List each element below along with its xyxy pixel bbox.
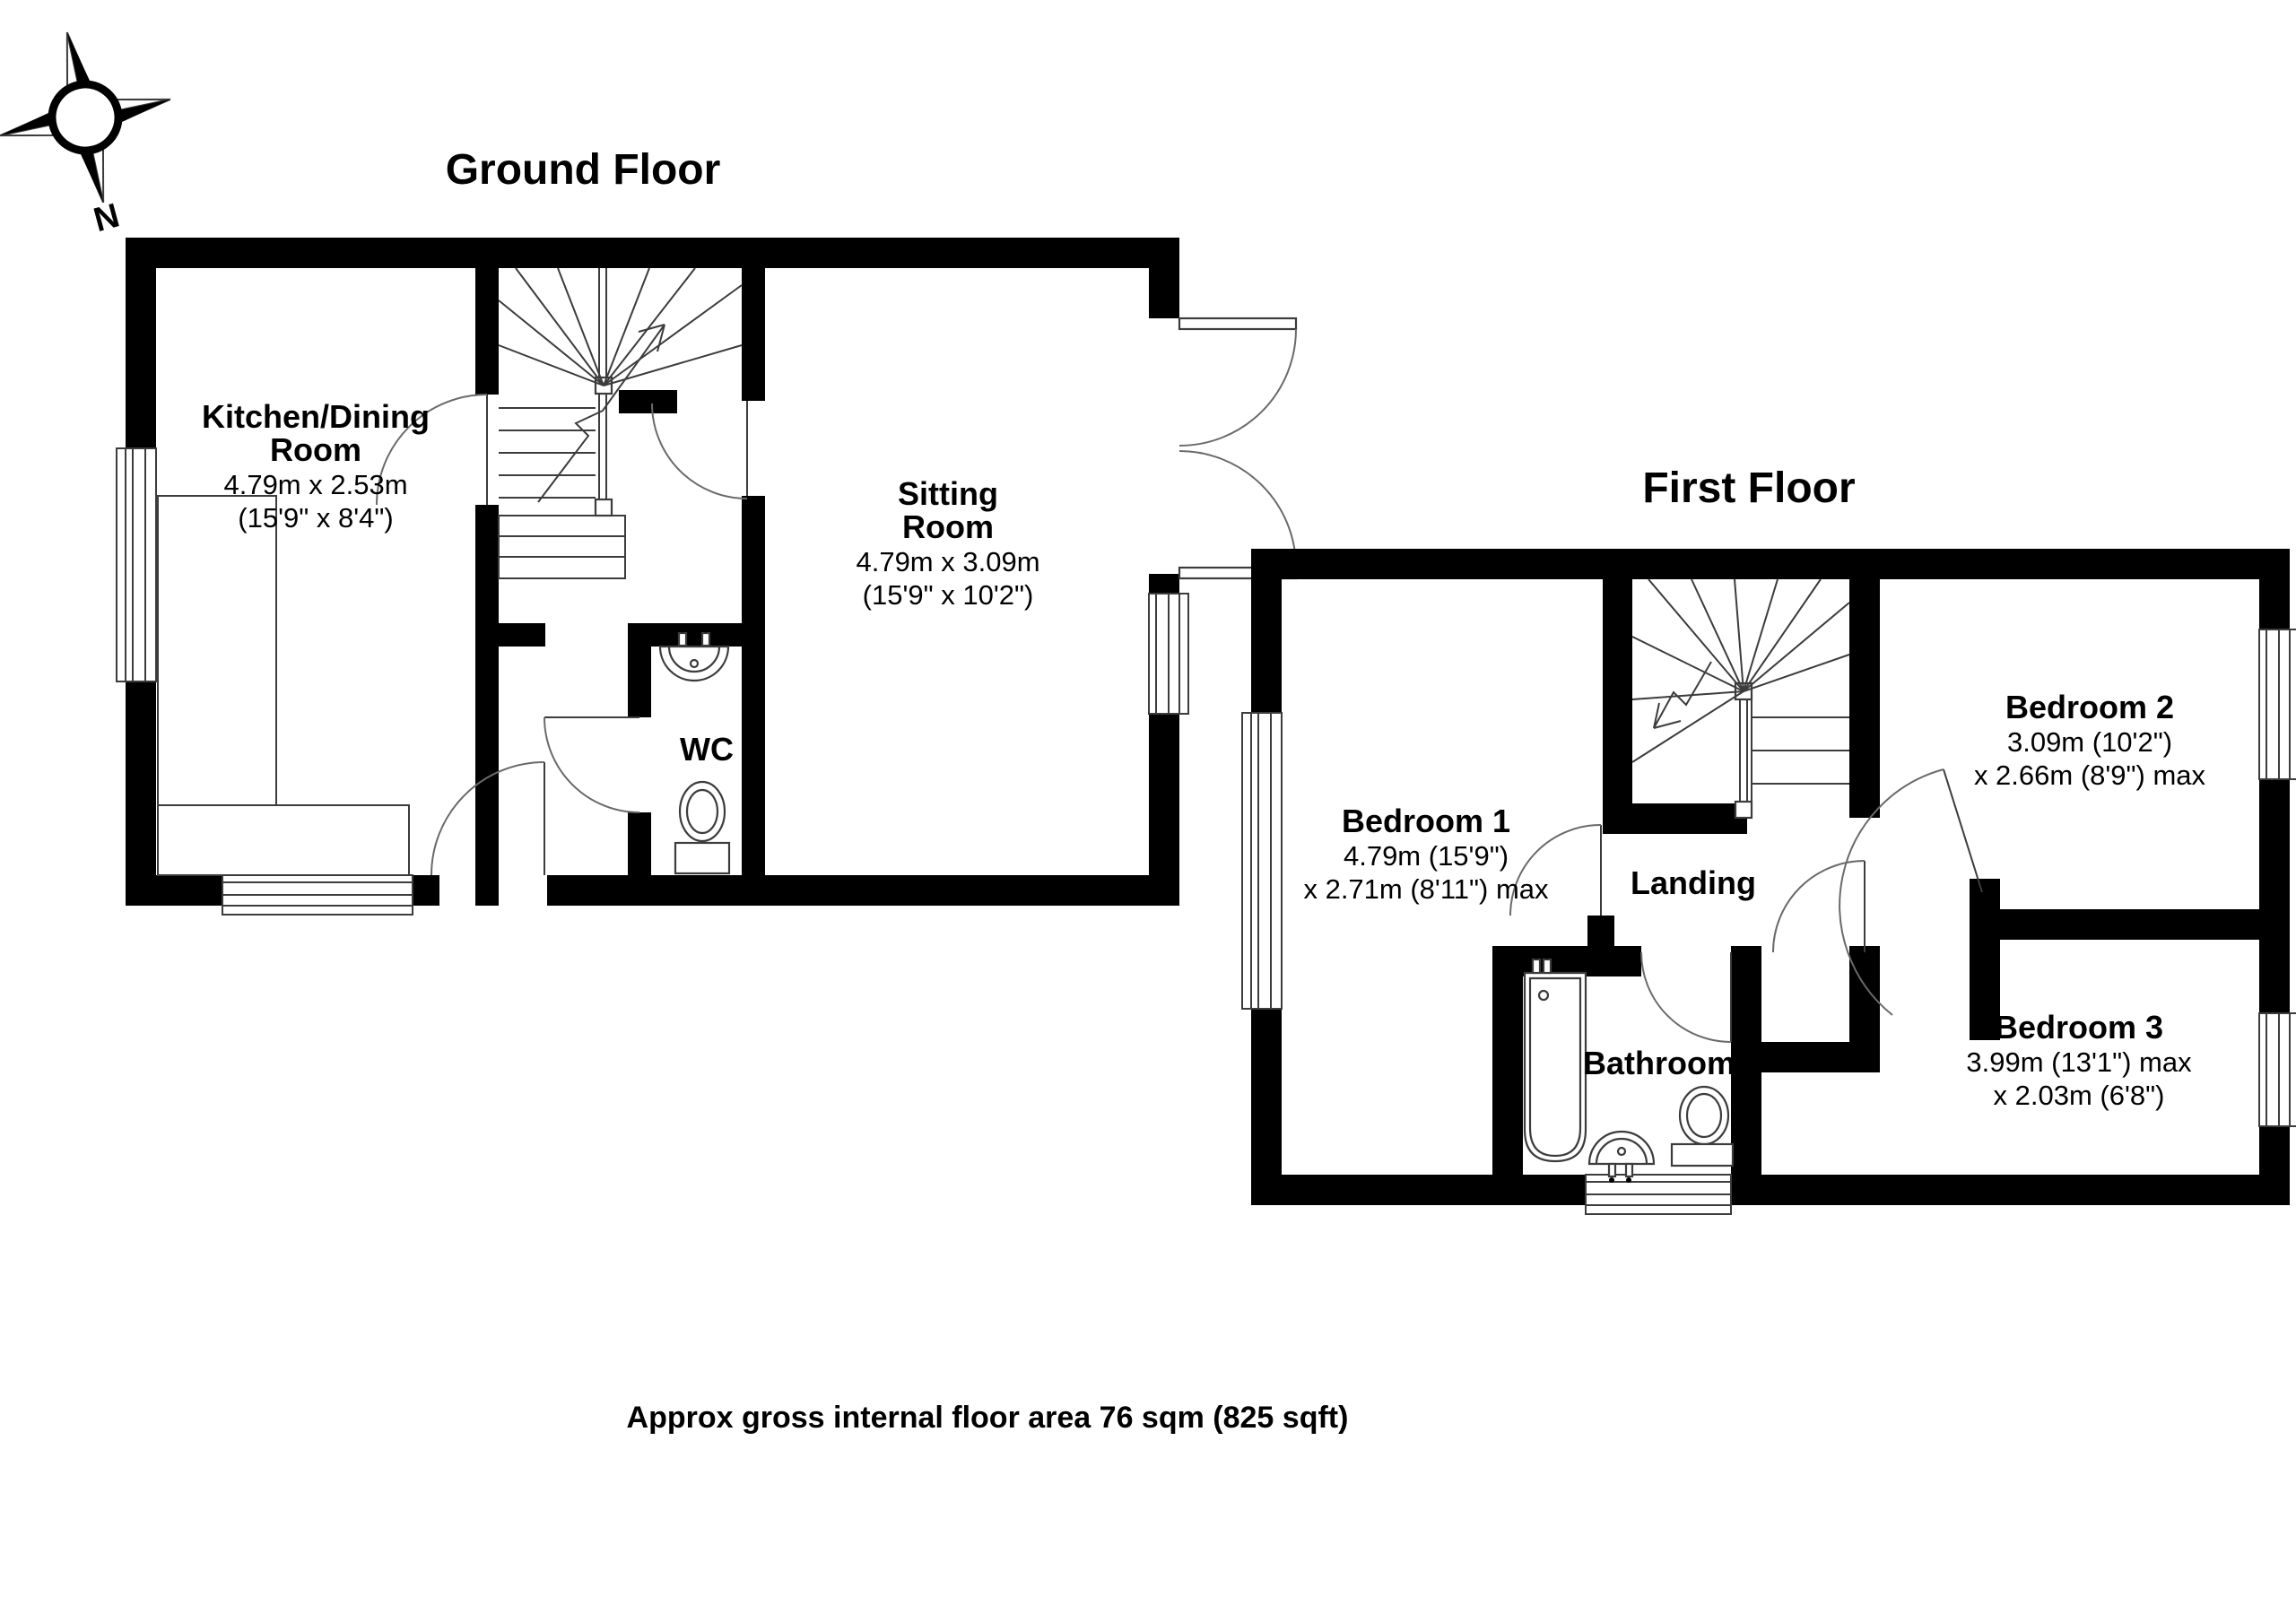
compass-rose: N xyxy=(0,14,188,239)
bedroom3-room-label: Bedroom 3 xyxy=(1995,1009,2163,1046)
kitchen-counter-icon xyxy=(158,496,409,875)
bathroom-toilet-icon xyxy=(1672,1087,1733,1166)
bedroom3-dims1: 3.99m (13'1") max xyxy=(1966,1046,2192,1078)
sitting-room-side-window-icon xyxy=(1149,594,1188,714)
bedroom2-dims1: 3.09m (10'2") xyxy=(2007,726,2172,758)
bedroom2-room-label: Bedroom 2 xyxy=(2005,689,2174,725)
bathroom-door-icon xyxy=(1641,952,1731,1042)
bathroom-window-icon xyxy=(1586,1175,1731,1214)
french-doors-icon xyxy=(1179,318,1296,578)
bedroom2-dims2: x 2.66m (8'9") max xyxy=(1974,759,2206,791)
bedroom3-window-icon xyxy=(2259,1013,2296,1126)
bedroom1-window-icon xyxy=(1242,713,1282,1009)
bedroom1-dims1: 4.79m (15'9") xyxy=(1344,840,1509,872)
floorplan-page: N Ground Floor xyxy=(0,0,2296,1623)
kitchen-side-window-icon xyxy=(117,448,156,681)
landing-room-label: Landing xyxy=(1631,864,1756,901)
sitting-dims-imperial: (15'9" x 10'2") xyxy=(863,579,1034,611)
first-stairs-icon xyxy=(1632,579,1849,818)
ground-floor-title: Ground Floor xyxy=(446,146,721,194)
bedroom2-window-icon xyxy=(2259,629,2296,779)
bedroom1-dims2: x 2.71m (8'11") max xyxy=(1303,873,1549,905)
sitting-dims-metric: 4.79m x 3.09m xyxy=(856,546,1039,577)
bathtub-icon xyxy=(1525,953,1586,1162)
wc-door-icon xyxy=(544,717,639,812)
compass-north-label: N xyxy=(90,197,123,240)
ground-stairs-icon xyxy=(499,268,742,578)
wc-room-label: WC xyxy=(680,731,734,768)
kitchen-room-label2: Room xyxy=(270,431,361,468)
kitchen-bottom-window-icon xyxy=(222,875,413,915)
bedroom1-room-label: Bedroom 1 xyxy=(1342,803,1510,839)
bathroom-room-label: Bathroom xyxy=(1583,1045,1735,1081)
wc-toilet-icon xyxy=(675,782,729,873)
floor-area-note: Approx gross internal floor area 76 sqm … xyxy=(627,1401,1349,1435)
sitting-room-door-icon xyxy=(652,401,747,499)
bedroom3-dims2: x 2.03m (6'8") xyxy=(1994,1080,2165,1111)
kitchen-dims-imperial: (15'9" x 8'4") xyxy=(238,502,393,534)
sitting-room-label2: Room xyxy=(902,508,994,545)
bedroom3-door-icon xyxy=(1773,861,1865,952)
floorplan-drawing: N Ground Floor xyxy=(0,0,2296,1623)
first-floor-plan: First Floor xyxy=(1242,464,2296,1214)
sitting-room-label: Sitting xyxy=(898,475,998,512)
kitchen-dims-metric: 4.79m x 2.53m xyxy=(223,469,407,500)
kitchen-room-label: Kitchen/Dining xyxy=(202,398,430,435)
ground-floor-plan: Ground Floor xyxy=(117,146,1296,915)
first-floor-title: First Floor xyxy=(1642,464,1855,512)
